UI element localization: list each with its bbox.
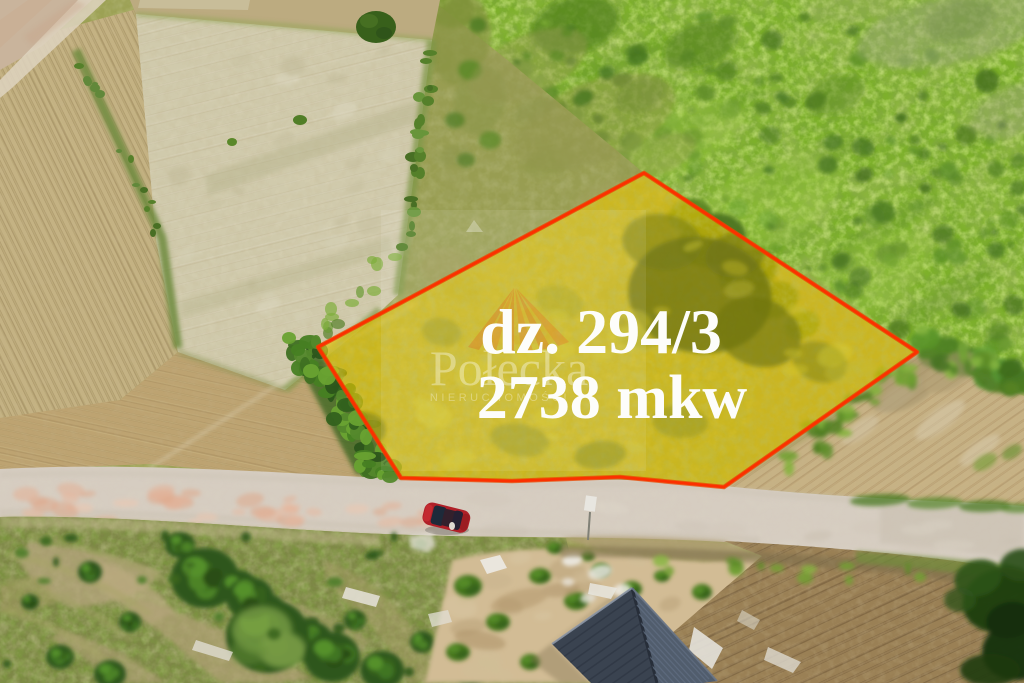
svg-text:dz. 294/3: dz. 294/3 [480, 296, 722, 367]
svg-text:2738 mkw: 2738 mkw [477, 364, 748, 432]
